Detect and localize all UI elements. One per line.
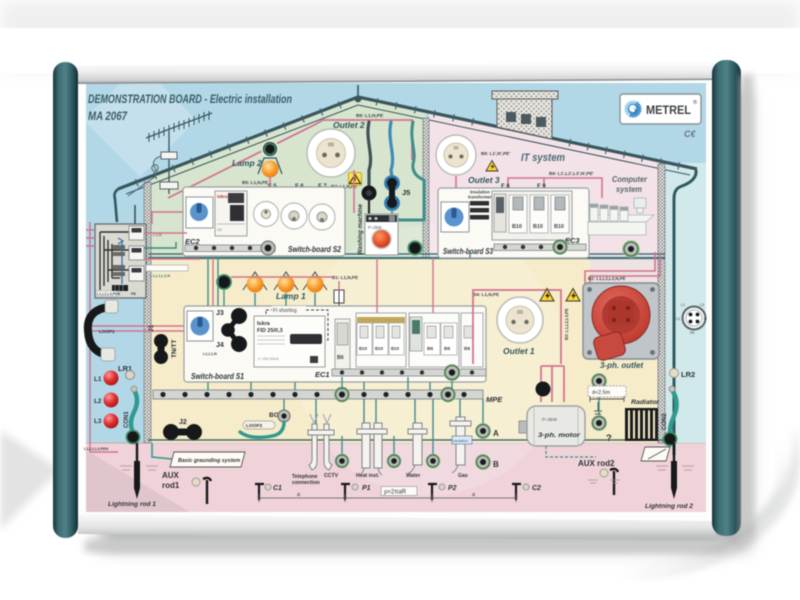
svg-text:B6: B6 bbox=[337, 355, 344, 361]
svg-text:B6: L1,N,PE: B6: L1,N,PE bbox=[356, 113, 384, 119]
svg-text:MA 2067: MA 2067 bbox=[88, 109, 128, 123]
svg-text:P=3kW: P=3kW bbox=[542, 417, 558, 422]
svg-text:Gas: Gas bbox=[458, 473, 468, 479]
svg-text:Heat inst.: Heat inst. bbox=[356, 473, 380, 479]
svg-text:Lightning rod 2: Lightning rod 2 bbox=[645, 503, 693, 510]
svg-text:Radiator: Radiator bbox=[631, 399, 659, 406]
svg-text:rod1: rod1 bbox=[162, 481, 180, 490]
svg-text:Outlet 2: Outlet 2 bbox=[333, 120, 365, 130]
svg-text:CON2: CON2 bbox=[662, 413, 668, 430]
svg-text:a: a bbox=[472, 492, 475, 498]
svg-text:CCTV: CCTV bbox=[324, 473, 339, 479]
svg-text:Outlet 1: Outlet 1 bbox=[503, 346, 535, 356]
svg-text:connection: connection bbox=[292, 480, 320, 486]
svg-text:ρ=2πaR: ρ=2πaR bbox=[384, 490, 407, 496]
svg-text:DEMONSTRATION BOARD - Electr: DEMONSTRATION BOARD - Electric installat… bbox=[88, 92, 292, 106]
svg-text:Basic graunding system: Basic graunding system bbox=[178, 458, 241, 464]
svg-text:B6: B6 bbox=[464, 346, 470, 352]
svg-text:®: ® bbox=[693, 99, 697, 106]
svg-text:LOOP1: LOOP1 bbox=[99, 329, 115, 334]
svg-text:B10: B10 bbox=[512, 224, 522, 230]
svg-text:B: B bbox=[493, 460, 499, 469]
svg-text:B10: B10 bbox=[391, 346, 400, 351]
svg-text:Water: Water bbox=[406, 473, 420, 479]
svg-text:CON1: CON1 bbox=[124, 411, 130, 428]
svg-text:Lamp 1: Lamp 1 bbox=[276, 291, 306, 301]
svg-text:METREL: METREL bbox=[646, 103, 691, 117]
svg-text:PE: PE bbox=[131, 292, 137, 296]
svg-text:a: a bbox=[297, 492, 300, 498]
svg-text:Switch-board S1: Switch-board S1 bbox=[191, 371, 244, 381]
svg-text:A: A bbox=[493, 429, 499, 438]
svg-text:B1: L1,N,PE: B1: L1,N,PE bbox=[332, 275, 358, 280]
svg-text:I= 25A 30mA: I= 25A 30mA bbox=[258, 357, 279, 361]
svg-text:B10: B10 bbox=[533, 224, 543, 230]
svg-text:3-ph. outlet: 3-ph. outlet bbox=[600, 361, 643, 370]
svg-text:J5: J5 bbox=[402, 188, 410, 197]
svg-text:L3: L3 bbox=[700, 303, 704, 307]
svg-text:B6: B6 bbox=[427, 346, 433, 352]
svg-text:B10: B10 bbox=[554, 224, 564, 230]
svg-text:N: N bbox=[704, 317, 707, 321]
svg-text:AUX rod2: AUX rod2 bbox=[578, 459, 615, 468]
svg-text:L1,L2,L3,N: L1,L2,L3,N bbox=[150, 273, 170, 278]
svg-text:B6: L1',N',PE': B6: L1',N',PE' bbox=[481, 151, 510, 156]
svg-text:3-ph. motor: 3-ph. motor bbox=[538, 432, 580, 439]
svg-text:B4: L1,N,PE: B4: L1,N,PE bbox=[473, 292, 499, 297]
svg-text:Switch-board S2: Switch-board S2 bbox=[288, 244, 341, 254]
svg-text:P2: P2 bbox=[448, 485, 457, 492]
svg-text:C2: C2 bbox=[532, 485, 541, 492]
svg-text:MPE: MPE bbox=[486, 395, 503, 404]
svg-text:J4: J4 bbox=[216, 342, 224, 349]
svg-text:system: system bbox=[616, 185, 642, 194]
svg-text:J1: J1 bbox=[148, 324, 155, 332]
svg-text:B3: L1,L2,L3,PE: B3: L1,L2,L3,PE bbox=[564, 308, 569, 340]
svg-text:L1: L1 bbox=[94, 376, 102, 383]
svg-text:FID 25/0,3: FID 25/0,3 bbox=[257, 328, 283, 334]
svg-text:B10: B10 bbox=[375, 346, 384, 351]
svg-text:B2: L1,L2,L3,N,PE: B2: L1,L2,L3,N,PE bbox=[588, 276, 626, 281]
svg-text:B9: L1',L2',L3',N',PE': B9: L1',L2',L3',N',PE' bbox=[549, 171, 594, 176]
svg-text:Switch-board S3: Switch-board S3 bbox=[443, 246, 493, 256]
svg-text:L1: L1 bbox=[681, 303, 685, 307]
svg-text:LR2: LR2 bbox=[681, 370, 695, 379]
svg-text:insulation: insulation bbox=[453, 439, 468, 443]
svg-text:Lamp 2: Lamp 2 bbox=[232, 158, 262, 168]
svg-text:L1,L2,L3,PEN: L1,L2,L3,PEN bbox=[84, 447, 109, 451]
svg-text:C1: C1 bbox=[273, 485, 282, 492]
svg-text:transformer: transformer bbox=[468, 195, 492, 200]
svg-text:C€: C€ bbox=[684, 129, 696, 139]
svg-text:BG: BG bbox=[269, 412, 279, 419]
svg-text:P1: P1 bbox=[362, 485, 371, 492]
svg-text:Iskra: Iskra bbox=[257, 321, 271, 327]
svg-text:AUX: AUX bbox=[162, 471, 180, 480]
svg-text:L1,L2,L3,PEN: L1,L2,L3,PEN bbox=[97, 292, 120, 296]
svg-text:J2: J2 bbox=[179, 419, 187, 426]
svg-text:PE: PE bbox=[690, 331, 695, 335]
svg-text:L1,L1,N: L1,L1,N bbox=[203, 352, 217, 356]
svg-text:?: ? bbox=[606, 433, 612, 444]
svg-text:B10: B10 bbox=[359, 346, 368, 351]
svg-text:L2: L2 bbox=[94, 398, 102, 405]
svg-text:Outlet 3: Outlet 3 bbox=[468, 175, 500, 185]
svg-text:IT system: IT system bbox=[521, 152, 565, 164]
svg-text:FI shorting: FI shorting bbox=[273, 308, 297, 314]
svg-text:CE: CE bbox=[217, 228, 223, 232]
svg-text:B6: B6 bbox=[444, 346, 450, 352]
svg-text:d<2.5m: d<2.5m bbox=[592, 390, 611, 396]
svg-text:L2: L2 bbox=[676, 317, 680, 321]
svg-text:J3: J3 bbox=[216, 310, 224, 317]
svg-text:B5: L1,N,PE: B5: L1,N,PE bbox=[242, 180, 268, 185]
svg-text:Computer: Computer bbox=[612, 175, 648, 184]
svg-text:TN/TT: TN/TT bbox=[171, 340, 178, 358]
svg-text:Lightning rod 1: Lightning rod 1 bbox=[108, 501, 156, 508]
svg-text:L3: L3 bbox=[94, 418, 102, 425]
svg-text:iskra: iskra bbox=[217, 194, 228, 199]
svg-text:EC1: EC1 bbox=[315, 370, 330, 379]
svg-text:LOOP2: LOOP2 bbox=[246, 423, 263, 429]
svg-text:Washing machine: Washing machine bbox=[358, 203, 364, 255]
